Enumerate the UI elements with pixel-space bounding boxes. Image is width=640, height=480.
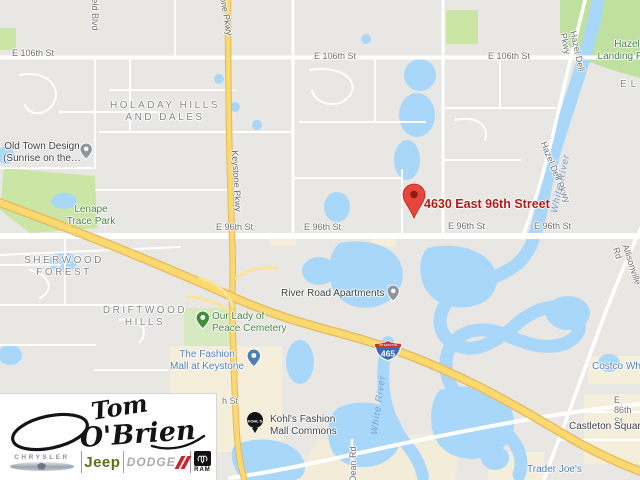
dealer-script-logo: Tom O'Brien (4, 394, 214, 452)
street-label-partial: h St (222, 396, 238, 406)
street-label-e96-3: E 96th St (448, 221, 485, 231)
brand-logos-row: CHRYSLER Jeep DODGE RAM (6, 449, 211, 475)
street-label-e106-2: E 106th St (314, 51, 356, 61)
poi-castleton-square[interactable]: Castleton Square (569, 421, 640, 433)
ram-logo: RAM (194, 451, 211, 473)
jeep-logo: Jeep (84, 454, 120, 471)
poi-kohls-fashion-mall-commons[interactable]: Kohl's Fashion Mall Commons (270, 414, 350, 437)
street-label-e106-1: E 106th St (12, 48, 54, 58)
destination-address-label[interactable]: 4630 East 96th Street (424, 197, 550, 211)
poi-our-lady-of-peace-cemetery[interactable]: Our Lady of Peace Cemetery (212, 311, 292, 334)
neighborhood-el-partial: EL (620, 79, 640, 91)
brand-separator (123, 451, 124, 473)
poi-costco[interactable]: Costco Wholesale (592, 361, 640, 373)
street-label-e96-1: E 96th St (216, 222, 253, 232)
ram-head-icon (194, 451, 211, 466)
chrysler-wordmark: CHRYSLER (14, 454, 70, 461)
svg-text:KOHL'S: KOHL'S (248, 418, 263, 423)
dealer-logo-box: Tom O'Brien CHRYSLER Jeep DODGE (0, 393, 217, 480)
neighborhood-driftwood: DRIFTWOOD HILLS (95, 305, 195, 328)
poi-hazel-landing-park[interactable]: Hazel Landing Park (592, 39, 640, 62)
chrysler-logo: CHRYSLER (6, 454, 78, 471)
dodge-logo: DODGE (127, 455, 188, 469)
street-label-field-blvd: field Blvd (90, 0, 100, 31)
street-label-e96-4: E 96th St (534, 221, 571, 231)
shield-system-text: INTERSTATE (379, 343, 397, 347)
poi-river-road-apartments[interactable]: River Road Apartments (281, 288, 384, 300)
neighborhood-holaday: HOLADAY HILLS AND DALES (100, 100, 230, 123)
ram-wordmark: RAM (194, 467, 211, 473)
street-label-dean: Dean Rd (348, 446, 358, 480)
map-screenshot: INTERSTATE 465 KO (0, 0, 640, 480)
poi-trader-joes[interactable]: Trader Joe's (527, 464, 582, 476)
chrysler-wing-icon (10, 462, 74, 471)
dodge-wordmark: DODGE (127, 455, 176, 469)
destination-pin-icon[interactable] (403, 184, 425, 218)
poi-old-town-design[interactable]: Old Town Design (Sunrise on the… (0, 141, 84, 164)
brand-separator (81, 451, 82, 473)
poi-lenape-trace-park[interactable]: Lenape Trace Park (60, 204, 122, 227)
shield-number-text: 465 (381, 349, 395, 359)
street-label-e96-2: E 96th St (304, 222, 341, 232)
street-label-e106-3: E 106th St (488, 51, 530, 61)
poi-fashion-mall[interactable]: The Fashion Mall at Keystone (166, 349, 248, 372)
brand-separator (190, 451, 191, 473)
neighborhood-sherwood: SHERWOOD FOREST (18, 255, 110, 278)
